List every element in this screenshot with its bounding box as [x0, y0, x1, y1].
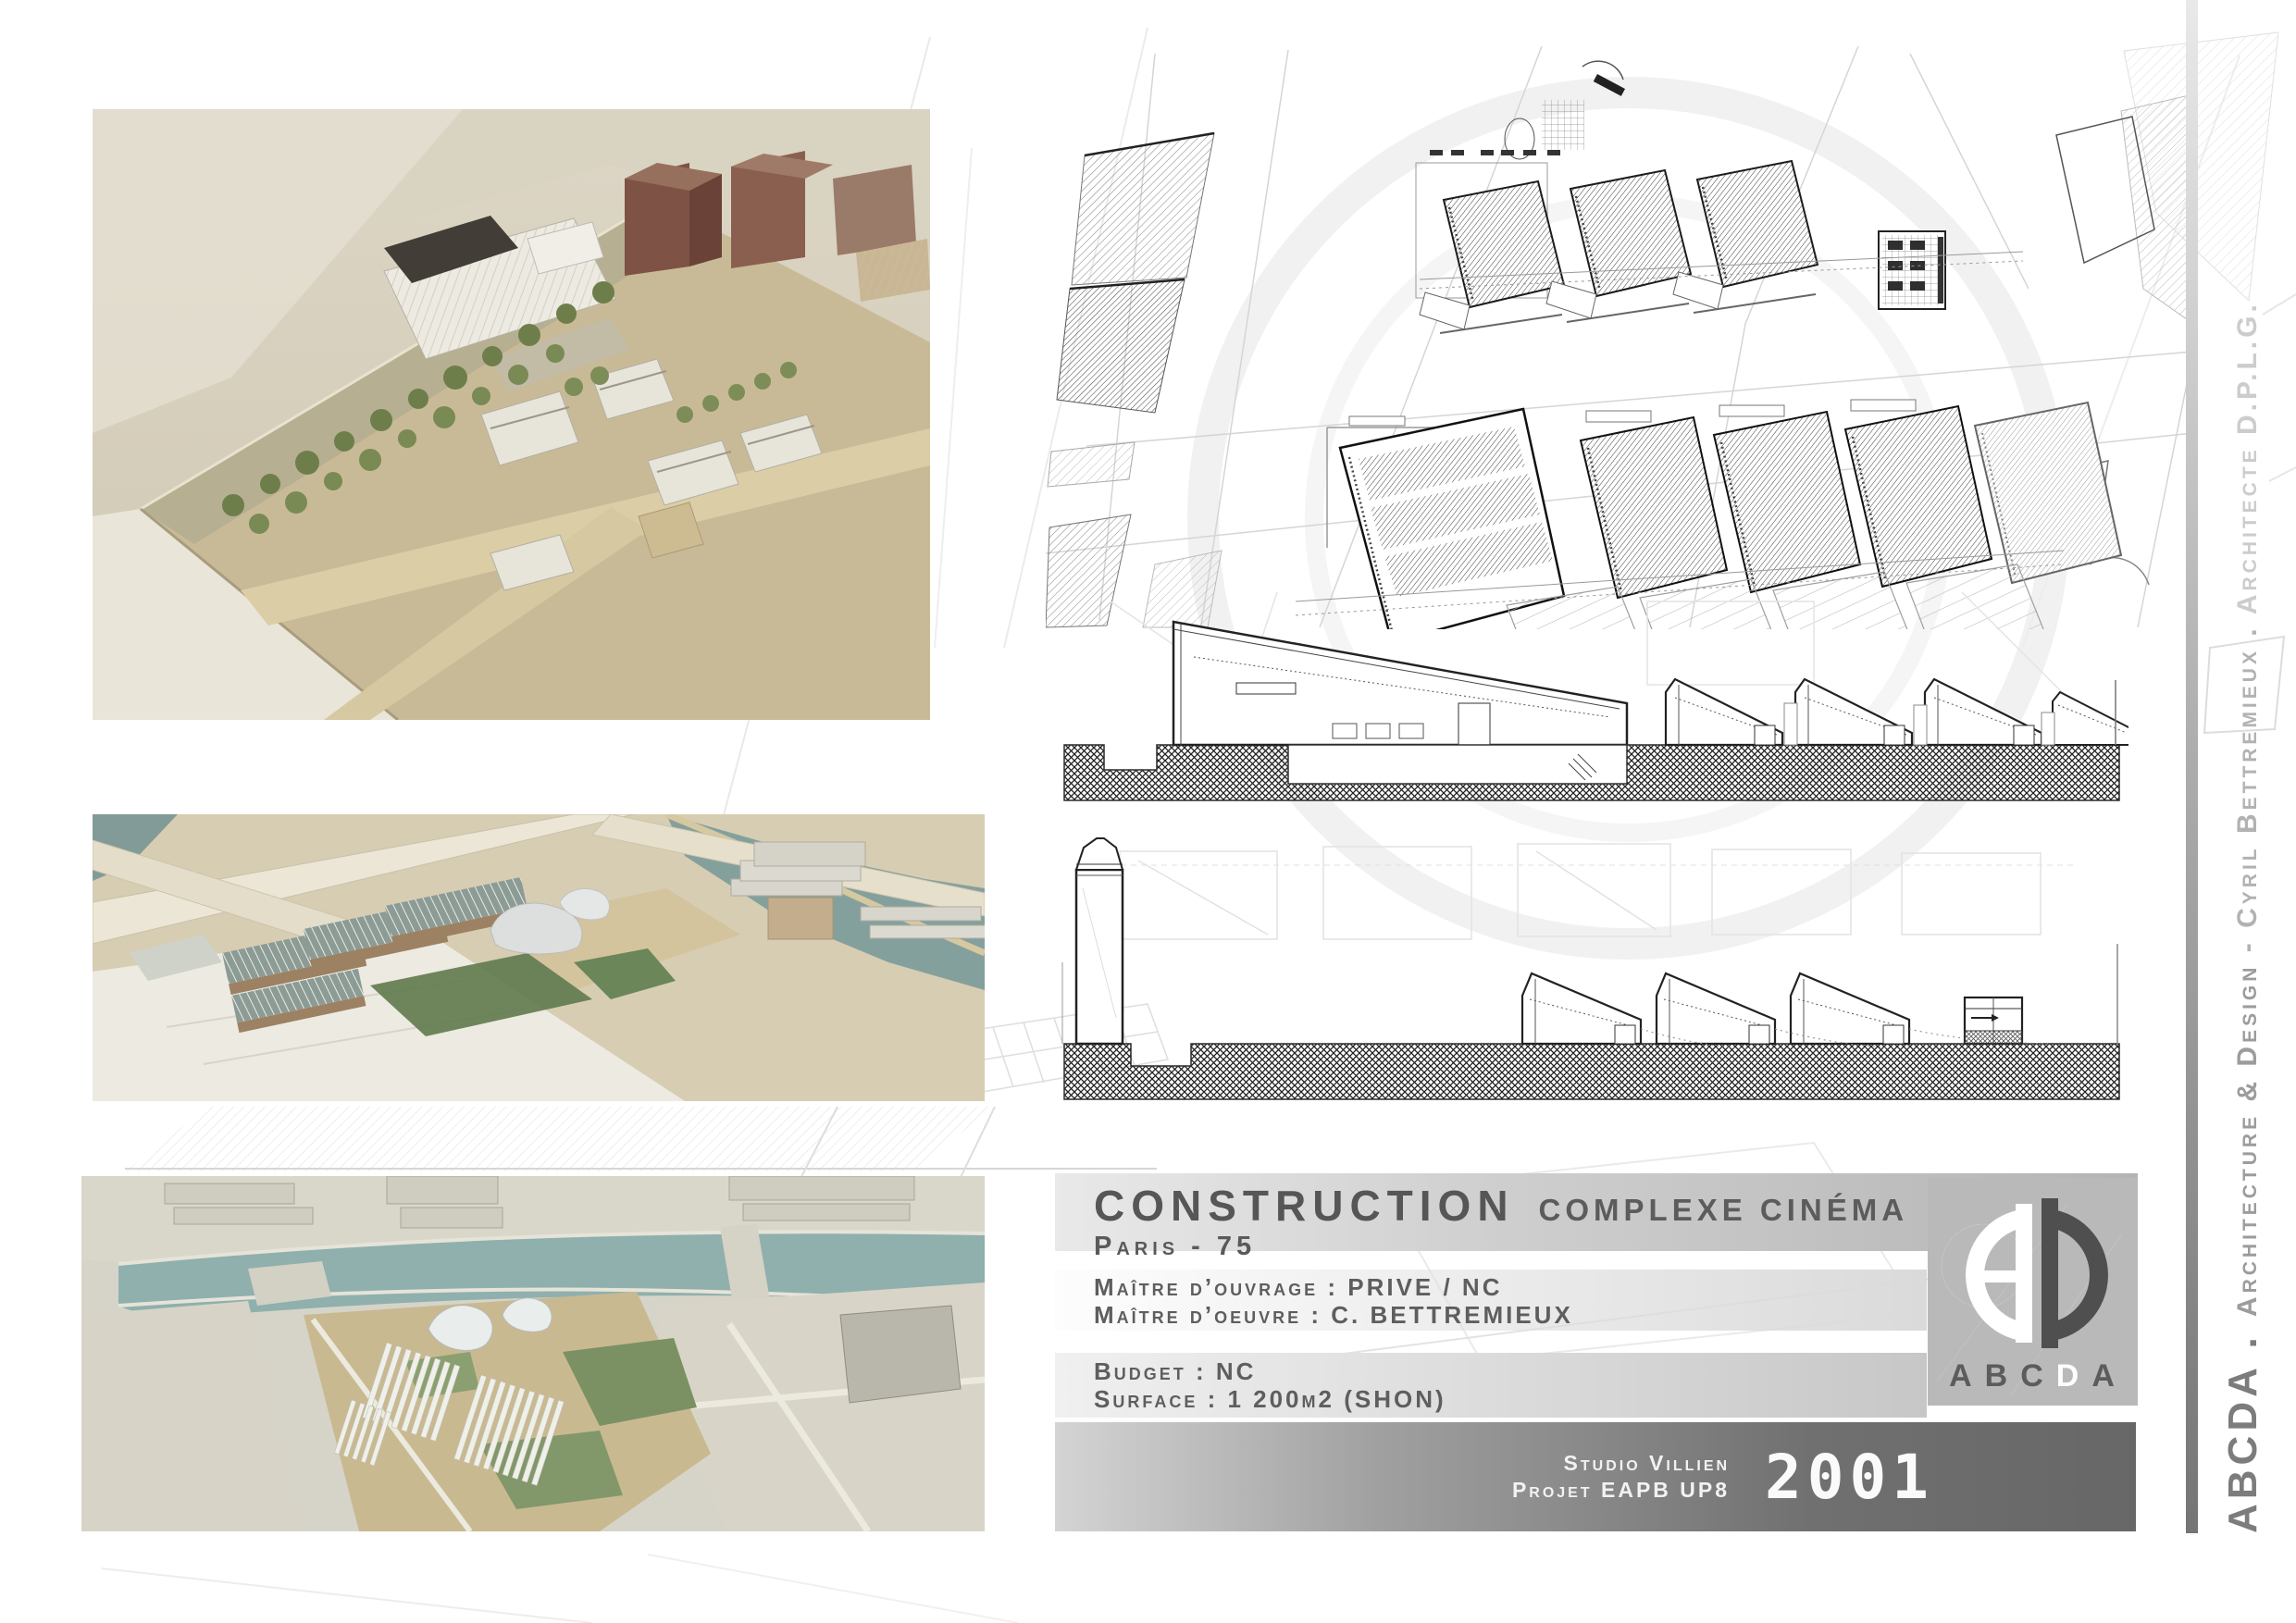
sidebar-vertical-credit: ABCDA . Architecture & Design - Cyril Be… [2219, 301, 2277, 1533]
sidebar-brand: ABCDA . [2220, 1317, 2265, 1533]
maitre-ouvrage-line: Maître d’ouvrage : PRIVE / NC [1094, 1273, 1927, 1301]
sidebar-rule-bar [2186, 0, 2198, 1533]
project-subtitle: COMPLEXE CINÉMA [1539, 1193, 1909, 1227]
studio-year-band: Studio Villien Projet EAPB UP8 2001 [1055, 1422, 2136, 1531]
maitre-oeuvre-line: Maître d’oeuvre : C. BETTREMIEUX [1094, 1301, 1927, 1329]
project-title: CONSTRUCTION [1094, 1182, 1515, 1230]
abcda-logo-box: ABCDA [1928, 1178, 2138, 1406]
photo-model-river-closeup [93, 814, 985, 1101]
portfolio-board: CONSTRUCTIONCOMPLEXE CINÉMA Paris - 75 M… [0, 0, 2296, 1623]
surface-line: Surface : 1 200m2 (SHON) [1094, 1385, 1927, 1413]
photo-site-model-overview [93, 109, 930, 720]
studio-credits: Studio Villien Projet EAPB UP8 [1512, 1450, 1730, 1504]
project-year: 2001 [1765, 1442, 1934, 1513]
sidebar-discipline: Architecture & Design [2232, 952, 2263, 1317]
sidebar-architect-name: - Cyril Bettremieux . [2232, 614, 2263, 952]
budget-info-block: Budget : NC Surface : 1 200m2 (SHON) [1055, 1353, 1927, 1418]
section-drawing-2 [1055, 833, 2128, 1110]
studio-name: Studio Villien [1512, 1450, 1730, 1477]
photo-model-aerial-context [81, 1176, 985, 1531]
sidebar-architect-title: Architecte D.P.L.G. [2232, 301, 2263, 614]
budget-line: Budget : NC [1094, 1357, 1927, 1385]
client-info-block: Maître d’ouvrage : PRIVE / NC Maître d’o… [1055, 1270, 1927, 1331]
site-plan-drawing [1046, 46, 2193, 629]
abcda-logo-text: ABCDA [1928, 1358, 2138, 1394]
section-drawing-1 [1055, 592, 2128, 814]
studio-project: Projet EAPB UP8 [1512, 1477, 1730, 1504]
